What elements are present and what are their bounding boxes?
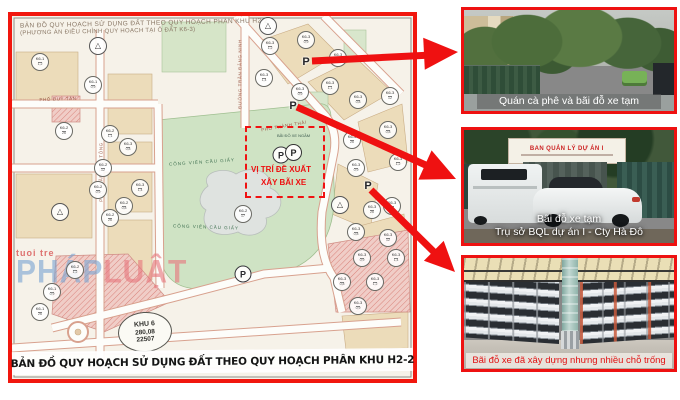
- photo-cafe-and-parking: Quán cà phê và bãi đỗ xe tạm: [461, 7, 677, 114]
- arrow-2-head: [418, 150, 456, 179]
- parking-rack-left: [464, 274, 559, 345]
- stamp-code: 22507: [136, 335, 155, 344]
- underground-parking-note: BÃI ĐỖ XE NGẦM: [277, 133, 310, 138]
- photo-2-caption-line2: Trụ sở BQL dự án I - Cty Hà Đô: [464, 226, 674, 240]
- proposed-site-box: BÃI ĐỖ XE NGẦM P VỊ TRÍ ĐỀ XUẤT XÂY BÃI …: [245, 126, 325, 198]
- photo-parking-structure: Bãi đỗ xe đã xây dựng nhưng nhiều chỗ tr…: [461, 255, 677, 372]
- photo-temp-parking-office: BAN QUẢN LÝ DỰ ÁN I Bãi đỗ xe tạm Trụ sở…: [461, 127, 677, 246]
- truck-bed-line: [473, 186, 538, 189]
- proposal-text-line2: XÂY BÃI XE: [261, 178, 306, 187]
- office-sign-text: BAN QUẢN LÝ DỰ ÁN I: [530, 146, 604, 152]
- dark-cars: [653, 63, 674, 95]
- proposal-text-line1: VỊ TRÍ ĐỀ XUẤT: [251, 165, 337, 174]
- office-sign: BAN QUẢN LÝ DỰ ÁN I: [508, 138, 626, 164]
- map-title-band: BẢN ĐỒ QUY HOẠCH SỬ DỤNG ĐẤT THEO QUY HO…: [12, 348, 413, 375]
- sign-subtext-bar: [521, 154, 613, 156]
- arrow-1-head: [423, 38, 458, 70]
- news-graphic: BẢN ĐỒ QUY HOẠCH SỬ DỤNG ĐẤT THEO QUY HO…: [0, 0, 680, 400]
- map-title: BẢN ĐỒ QUY HOẠCH SỬ DỤNG ĐẤT THEO QUY HO…: [11, 353, 415, 369]
- planning-map: BẢN ĐỒ QUY HOẠCH SỬ DỤNG ĐẤT THEO QUY HO…: [8, 12, 417, 383]
- photo-2-caption: Bãi đỗ xe tạm Trụ sở BQL dự án I - Cty H…: [464, 213, 674, 240]
- truck-rear-window: [481, 169, 527, 181]
- photo-2-caption-line1: Bãi đỗ xe tạm: [464, 213, 674, 227]
- map-artwork: [12, 16, 413, 379]
- parking-icon: P: [285, 144, 302, 161]
- arrow-3-head: [424, 241, 455, 272]
- parking-rack-right: [580, 274, 675, 345]
- column-base: [561, 331, 580, 349]
- photo-1-caption: Quán cà phê và bãi đỗ xe tạm: [477, 94, 662, 109]
- green-fence: [464, 65, 540, 94]
- photo-3-caption: Bãi đỗ xe đã xây dựng nhưng nhiều chỗ tr…: [466, 353, 672, 368]
- sedan-tail-light: [632, 197, 641, 202]
- green-car: [622, 71, 647, 86]
